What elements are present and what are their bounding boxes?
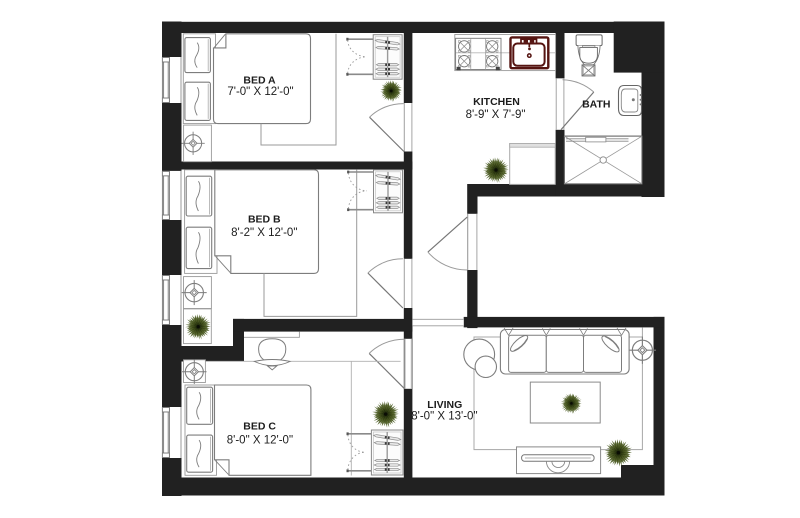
svg-text:BED A: BED A <box>243 74 276 86</box>
svg-text:8'-0" X 13'-0": 8'-0" X 13'-0" <box>411 410 477 422</box>
svg-text:KITCHEN: KITCHEN <box>473 96 520 108</box>
svg-text:LIVING: LIVING <box>427 399 462 411</box>
svg-text:7'-0" X 12'-0": 7'-0" X 12'-0" <box>227 86 293 98</box>
svg-text:BATH: BATH <box>582 99 610 111</box>
svg-text:BED B: BED B <box>248 214 281 226</box>
svg-text:8'-0" X 12'-0": 8'-0" X 12'-0" <box>227 435 293 447</box>
svg-text:8'-9" X 7'-9": 8'-9" X 7'-9" <box>466 109 526 121</box>
svg-text:8'-2" X 12'-0": 8'-2" X 12'-0" <box>231 227 297 239</box>
svg-text:BED C: BED C <box>243 421 276 433</box>
